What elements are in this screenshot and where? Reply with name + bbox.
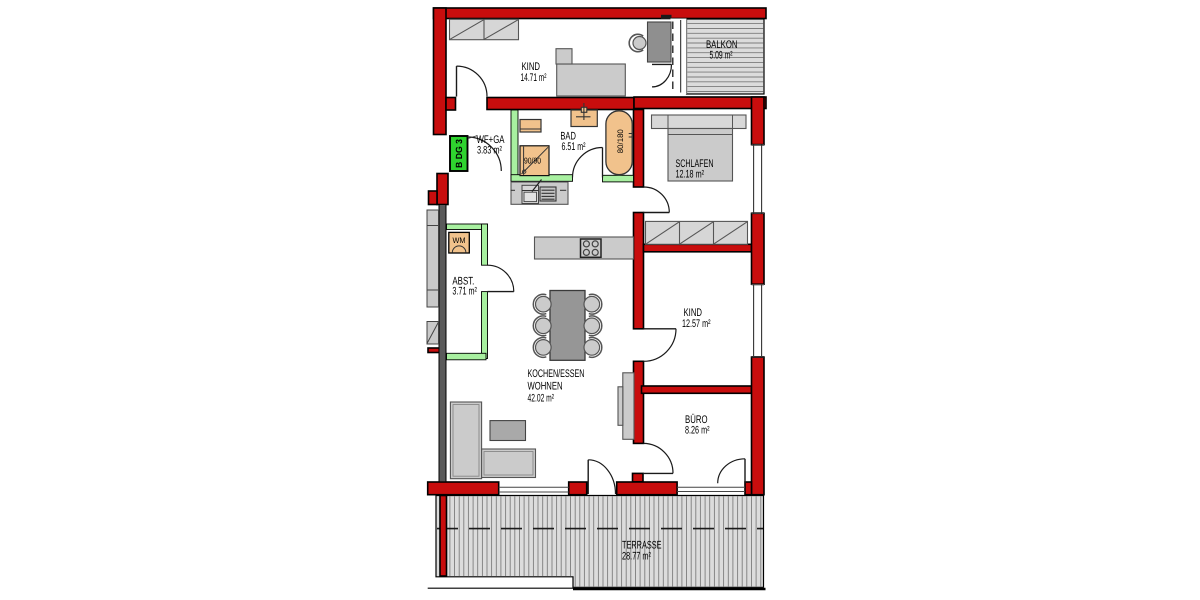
svg-text:WM: WM [453, 236, 466, 245]
svg-text:5.09 m²: 5.09 m² [710, 50, 733, 62]
svg-text:B DG 3: B DG 3 [454, 139, 464, 168]
svg-text:14.71 m²: 14.71 m² [521, 72, 547, 84]
svg-text:28.77 m²: 28.77 m² [622, 551, 651, 563]
svg-text:8.26 m²: 8.26 m² [685, 425, 710, 437]
svg-text:6.51 m²: 6.51 m² [562, 141, 586, 153]
svg-text:90/90: 90/90 [524, 156, 541, 166]
svg-text:12.57 m²: 12.57 m² [682, 318, 711, 330]
svg-text:3.71 m²: 3.71 m² [452, 286, 477, 298]
svg-text:3.83 m²: 3.83 m² [477, 145, 502, 157]
svg-text:WOHNEN: WOHNEN [528, 381, 563, 393]
svg-text:KOCHEN/ESSEN: KOCHEN/ESSEN [528, 368, 585, 380]
svg-text:42.02 m²: 42.02 m² [528, 393, 555, 405]
svg-text:12.18 m²: 12.18 m² [676, 169, 705, 181]
svg-text:80/180: 80/180 [616, 129, 625, 154]
